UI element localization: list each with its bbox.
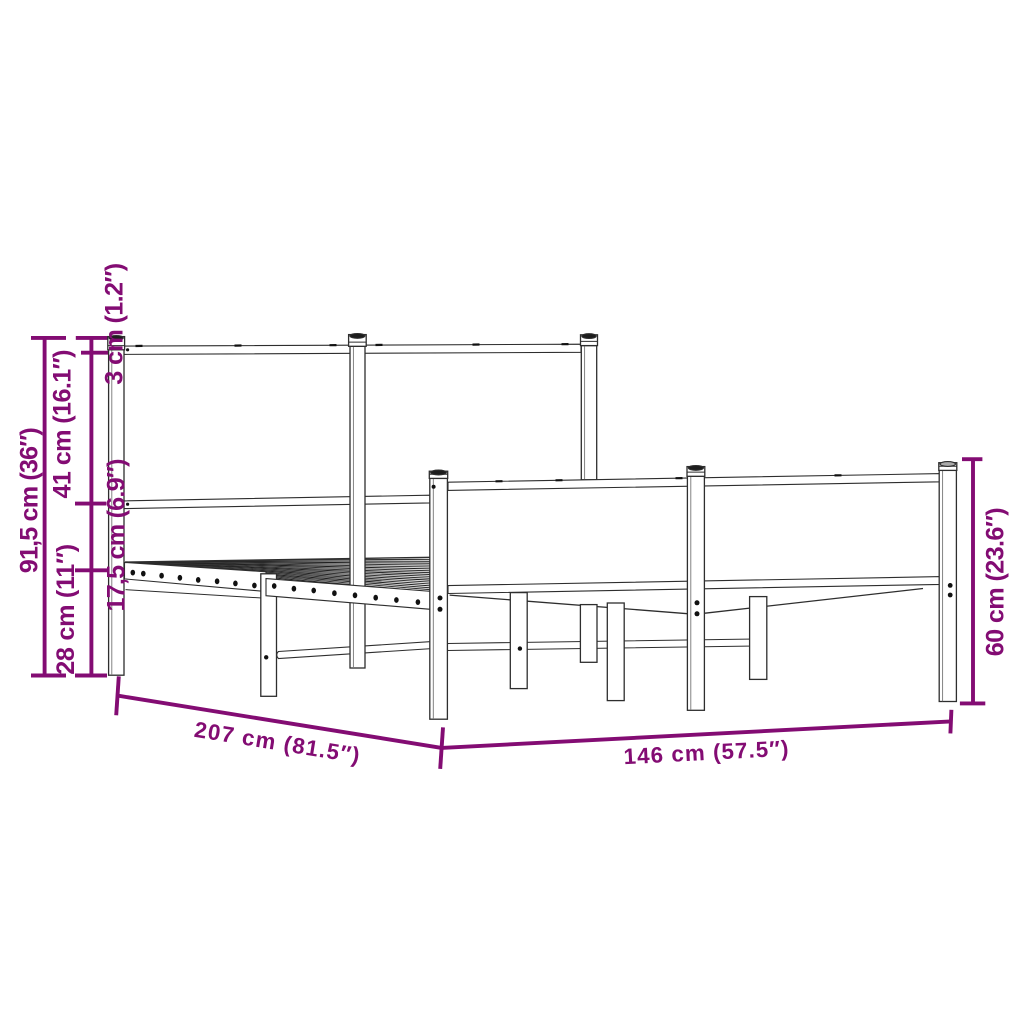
svg-text:41 cm (16.1″): 41 cm (16.1″) — [49, 350, 77, 499]
svg-text:60 cm (23.6″): 60 cm (23.6″) — [982, 507, 1010, 656]
svg-text:28 cm (11″): 28 cm (11″) — [52, 544, 80, 675]
svg-text:91,5 cm (36″): 91,5 cm (36″) — [16, 427, 44, 573]
svg-text:17,5 cm (6.9″): 17,5 cm (6.9″) — [102, 459, 130, 612]
svg-text:3 cm (1.2″): 3 cm (1.2″) — [101, 263, 129, 385]
